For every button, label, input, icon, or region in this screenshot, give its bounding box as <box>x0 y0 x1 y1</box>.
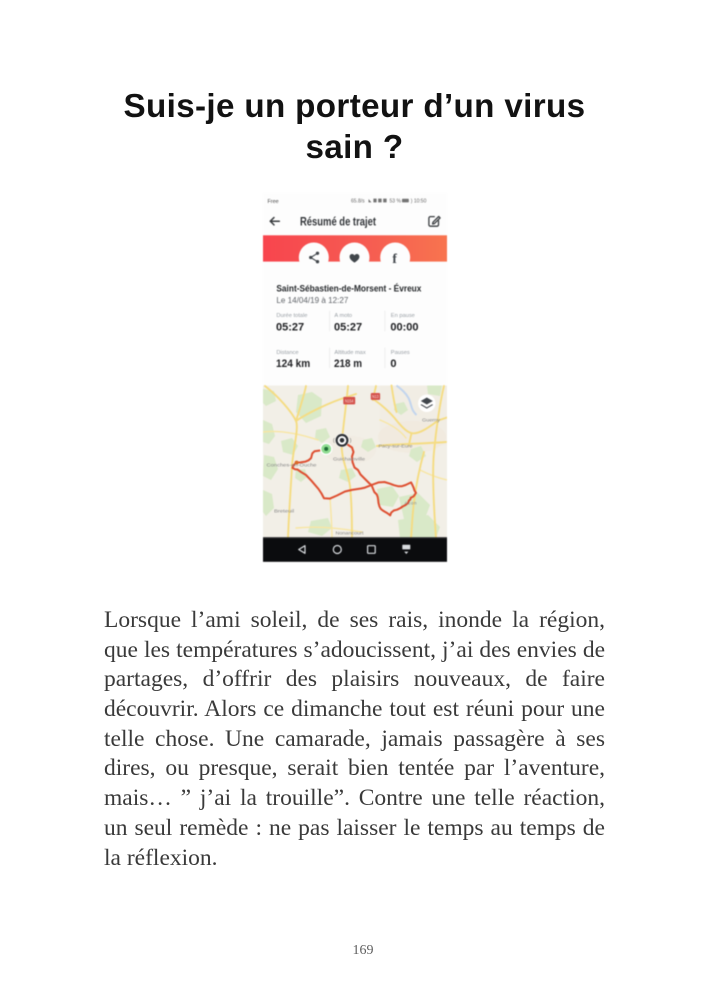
svg-text:Altitude max: Altitude max <box>334 350 365 356</box>
svg-text:Pacy-sur-Eure: Pacy-sur-Eure <box>379 444 413 450</box>
svg-text:Le 14/04/19 à 12:27: Le 14/04/19 à 12:27 <box>276 296 348 305</box>
svg-text:Résumé de trajet: Résumé de trajet <box>300 216 376 228</box>
svg-text:Guichainville: Guichainville <box>333 457 365 463</box>
svg-text:53 %: 53 % <box>390 198 402 204</box>
svg-text:Free: Free <box>268 199 279 205</box>
svg-text:Conches-en-Ouche: Conches-en-Ouche <box>267 462 317 468</box>
svg-text:Distance: Distance <box>276 350 298 356</box>
svg-text:Pauses: Pauses <box>391 350 410 356</box>
svg-text:Saint-Sébastien-de-Morsent - É: Saint-Sébastien-de-Morsent - Évreux <box>276 284 421 294</box>
svg-text:65.8/s: 65.8/s <box>351 198 365 204</box>
svg-text:N154: N154 <box>345 399 354 404</box>
svg-text:f: f <box>392 251 397 266</box>
svg-text:En pause: En pause <box>391 313 415 319</box>
svg-text:05:27: 05:27 <box>334 321 362 333</box>
svg-text:124 km: 124 km <box>276 358 310 370</box>
svg-text:05:27: 05:27 <box>276 321 304 333</box>
svg-text:A moto: A moto <box>334 313 352 319</box>
svg-text:0: 0 <box>390 358 396 370</box>
svg-text:00:00: 00:00 <box>390 321 418 333</box>
svg-text:Nonancourt: Nonancourt <box>336 530 365 536</box>
svg-text:) 10:50: ) 10:50 <box>411 198 427 204</box>
svg-text:N13: N13 <box>372 394 379 399</box>
svg-text:Guerny: Guerny <box>422 417 441 423</box>
svg-text:218 m: 218 m <box>334 358 362 370</box>
svg-text:Acon: Acon <box>405 501 417 506</box>
svg-text:Durée totale: Durée totale <box>276 313 307 319</box>
svg-text:Breteuil: Breteuil <box>274 508 294 514</box>
